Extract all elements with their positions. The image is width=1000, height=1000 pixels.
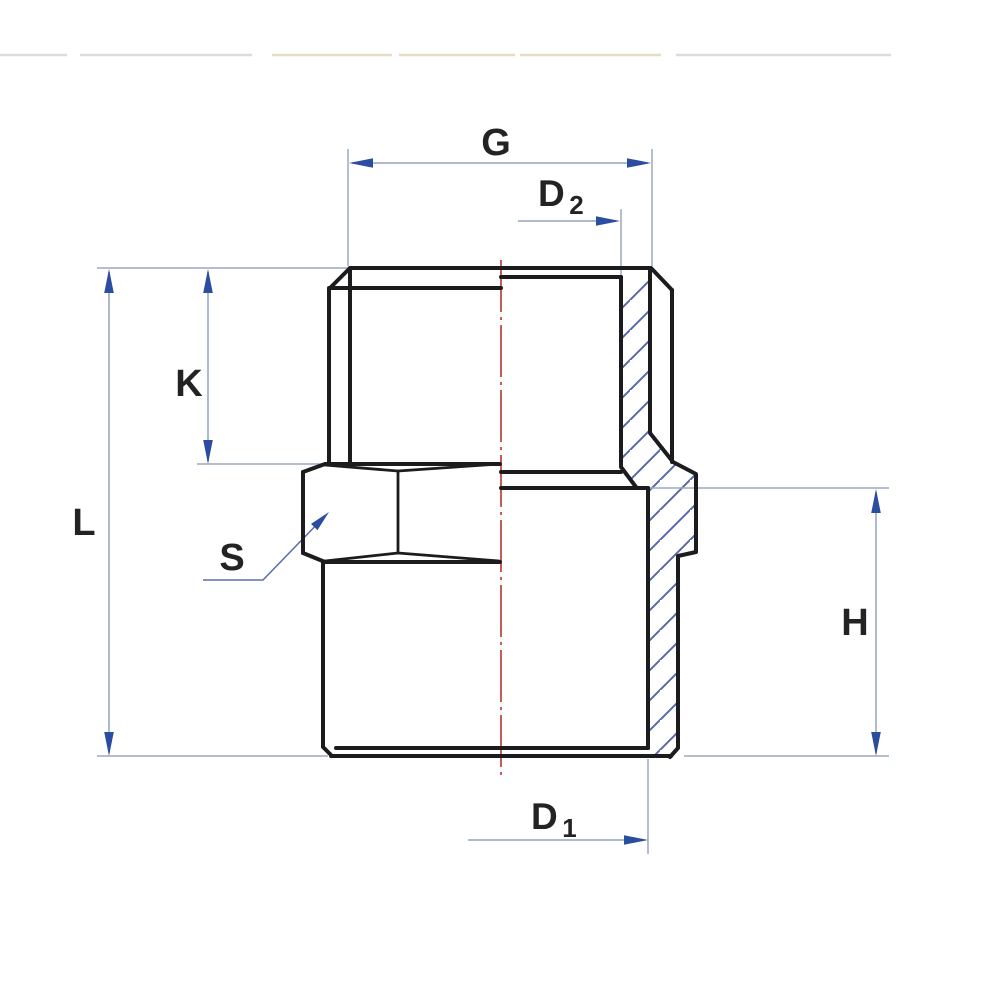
- g-arrow-left: [349, 158, 373, 168]
- hex-bottom-facet: [325, 553, 499, 561]
- label-d1-subscript: 1: [562, 813, 576, 843]
- section-hatch-region: [621, 278, 696, 757]
- g-arrow-right: [627, 158, 651, 168]
- label-d2: D 2: [538, 173, 584, 220]
- label-d2-subscript: 2: [569, 190, 583, 220]
- dimension-arrows: [104, 158, 881, 845]
- label-d1: D 1: [531, 796, 577, 843]
- hex-facet-lines: [325, 464, 499, 561]
- label-l: L: [72, 502, 95, 544]
- k-arrow-up: [203, 269, 213, 293]
- label-s: S: [219, 537, 244, 579]
- d2-arrow-right: [596, 216, 620, 226]
- h-arrow-up: [871, 489, 881, 513]
- k-arrow-down: [203, 440, 213, 464]
- label-d1-base: D: [531, 796, 558, 837]
- label-k: K: [175, 363, 203, 405]
- dimension-lines: [109, 163, 876, 840]
- label-g: G: [481, 122, 511, 164]
- label-h: H: [841, 602, 868, 644]
- l-arrow-up: [104, 269, 114, 293]
- label-d2-base: D: [538, 173, 565, 214]
- dimension-labels: G D 2 K L S H D 1: [72, 122, 868, 843]
- h-arrow-down: [871, 732, 881, 756]
- l-arrow-down: [104, 732, 114, 756]
- technical-drawing-svg: G D 2 K L S H D 1: [0, 0, 1000, 1000]
- d1-arrow-right: [624, 835, 648, 845]
- lower-left-edge: [323, 562, 332, 756]
- drawing-canvas: G D 2 K L S H D 1: [0, 0, 1000, 1000]
